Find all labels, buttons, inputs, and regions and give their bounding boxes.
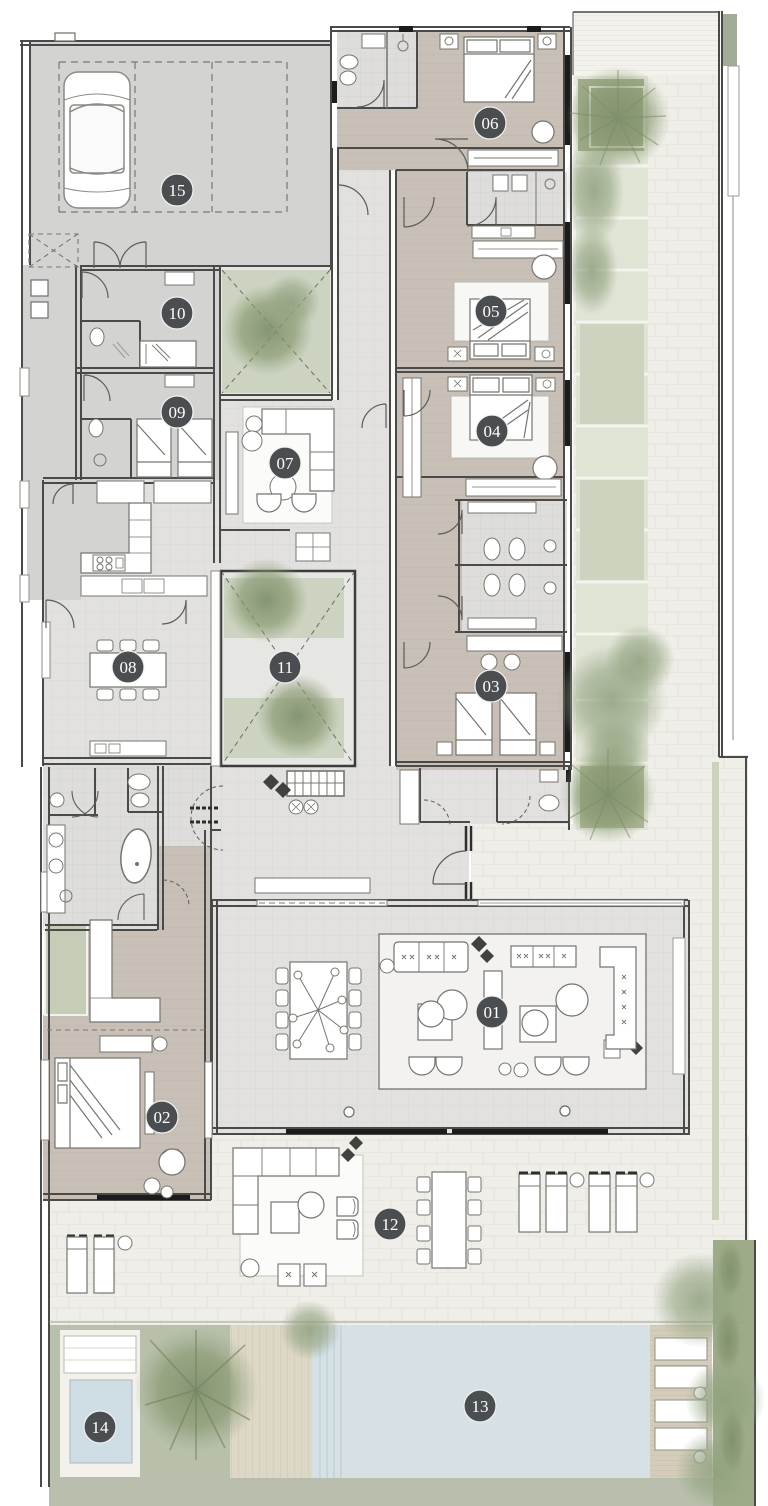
svg-text:12: 12 [382,1215,399,1234]
svg-text:13: 13 [472,1397,489,1416]
svg-text:07: 07 [277,454,295,473]
svg-text:01: 01 [484,1003,501,1022]
svg-text:08: 08 [120,658,137,677]
svg-text:15: 15 [169,181,186,200]
svg-text:02: 02 [154,1108,171,1127]
svg-text:14: 14 [92,1418,110,1437]
svg-text:05: 05 [483,302,500,321]
svg-text:03: 03 [483,677,500,696]
svg-text:10: 10 [169,304,186,323]
svg-text:09: 09 [169,403,186,422]
svg-text:04: 04 [484,422,502,441]
svg-text:06: 06 [482,114,499,133]
svg-text:11: 11 [277,658,293,677]
